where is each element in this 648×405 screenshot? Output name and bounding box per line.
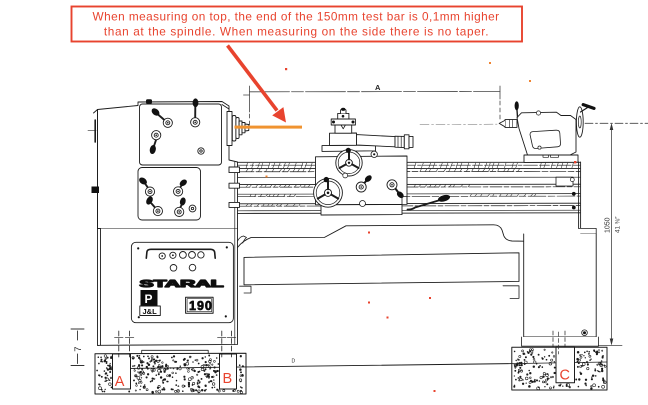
svg-text:When measuring on top, the end: When measuring on top, the end of the 15… [93, 9, 500, 23]
svg-text:41 ⅜″: 41 ⅜″ [615, 216, 622, 233]
svg-text:A: A [115, 374, 125, 390]
svg-text:STARAL: STARAL [140, 278, 225, 290]
svg-text:A: A [375, 83, 381, 92]
svg-text:1050: 1050 [605, 217, 612, 233]
svg-text:D: D [292, 359, 296, 365]
svg-text:C: C [560, 368, 570, 384]
svg-text:J&L: J&L [143, 307, 158, 316]
svg-text:B: B [223, 371, 233, 387]
svg-text:than at the spindle. When meas: than at the spindle. When measuring on t… [104, 25, 489, 39]
svg-text:7: 7 [73, 347, 84, 352]
svg-text:190: 190 [189, 299, 213, 313]
svg-text:P: P [145, 292, 153, 306]
